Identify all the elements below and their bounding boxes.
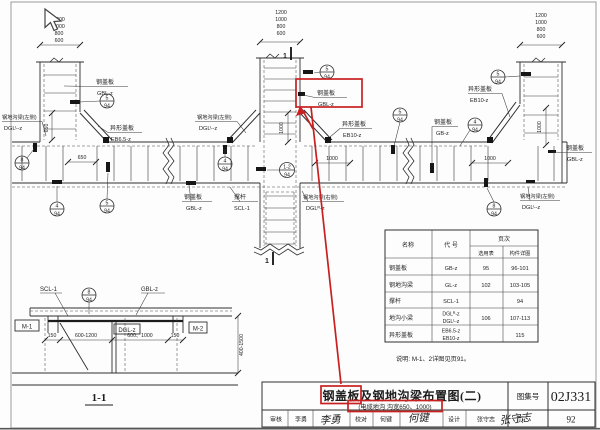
check-label: 校对 [355,416,367,424]
cell-code: GL-z [445,283,457,289]
dim-1000: 1000 [279,122,285,134]
bubble-page-no: 94 [491,212,497,218]
note-text: 说明: M-1、2详图见页91。 [396,355,470,363]
col-header-detail: 构件详图 [510,249,531,257]
review-label: 审核 [270,416,282,424]
bubble-detail-no: 8 [493,204,496,210]
col-header-selection: 选用表 [478,249,494,257]
plan-leaders [2,72,592,202]
reviewer-name: 李勇 [295,416,307,424]
page-no: 92 [567,415,576,425]
col-header-page: 页次 [498,235,510,243]
cell-code: SCL-1 [443,299,459,305]
dim-650: 650 [78,155,87,161]
bubble-page-no: 94 [222,167,228,173]
m2-label: M-2 [193,327,204,333]
dim-value: 800 [55,31,64,37]
cell-name: 地沟小梁 [389,314,413,322]
bubble-detail-no: 4 [56,204,59,210]
cell-code2: EB10-z [442,336,459,342]
part-label: 钢盖板 [566,144,584,152]
cell-code: GB-z [445,266,458,272]
highlight-connector-line [311,107,341,384]
design-label: 设计 [448,416,460,424]
col-header-code: 代 号 [444,241,458,249]
dim-stack-right: 1200 1000 800 600 [535,13,547,40]
section-dim: 150 [48,333,57,339]
cell-sel: 102 [481,283,490,289]
part-label: 钢盖板 [96,78,114,86]
cell-name: 钢盖板 [389,264,407,272]
section-view: 8 94 SCL-1 GBL-z M-1 M-2 DGL-z 150 600-1… [12,287,245,405]
part-code: EB6.5-z [111,137,131,143]
part-label: 撑杆 [234,193,246,201]
dim-value: 1000 [535,20,547,26]
part-code: GBL-z [567,157,583,163]
dim-value: 600 [55,38,64,44]
plan-view: 1200 1000 800 600 1200 1000 800 600 1200… [2,10,592,265]
section-cut-mark: 1 [265,258,269,265]
parts-table: 名称 代 号 页次 选用表 构件详图 钢盖板 GB-z 95 96-101 钢地… [385,230,538,363]
cell-det: 96-101 [511,266,528,272]
bubble-page-no: 94 [54,212,60,218]
part-label: 钢地沟梁(左侧) [197,113,232,121]
bubble-page-no: 94 [104,209,110,215]
part-code: DGLᴸ-z [522,204,540,211]
section-title: 1-1 [92,392,107,404]
cell-name: 撑杆 [389,297,401,305]
part-label: 钢盖板 [434,118,452,126]
cell-code2: DGLᴸ-z [443,319,460,325]
bubble-detail-no: 5 [106,201,109,207]
part-label: 异形盖板 [342,120,366,128]
dim-value: 800 [277,24,286,30]
check-signature: 何键 [408,412,431,425]
part-label: 钢盖板 [184,193,202,201]
part-code: EB10-z [343,133,362,139]
part-label-highlighted: 钢盖板 [317,89,335,97]
title-block: 钢盖板及钢地沟梁布置图(二) (电缆地沟 沟宽650、1000) 图集号 02J… [262,382,595,427]
strut-label: SCL-1 [40,287,58,293]
design-signature: 张守志 [499,412,533,427]
part-code: DGLᴸ-z [4,125,22,132]
bubble-detail-no: 8 [21,158,24,164]
atlas-no-label: 图集号 [517,391,540,401]
dim-value: 1200 [275,10,287,16]
cell-sel: 106 [481,316,490,322]
cell-det: 107-113 [510,316,530,322]
bubble-detail-no: 5 [106,96,109,102]
dim-value: 600 [537,34,546,40]
part-code: GBL-z [186,206,202,212]
section-depth-dim: 400-1500 [239,334,245,356]
atlas-no: 02J331 [551,390,591,405]
bubble-detail-no: 5 [326,67,329,73]
designer-name: 张守志 [477,416,495,424]
m1-label: M-1 [22,325,33,331]
cell-det: 115 [516,333,525,339]
part-code: DGLᴸ-z [199,125,217,132]
part-label: 钢地沟梁(左侧) [520,192,555,200]
bubble-page-no: 94 [472,128,478,134]
review-signature: 李勇 [319,414,341,427]
cover-plate-label: GBL-z [141,287,158,293]
dim-1000: 1000 [484,156,496,162]
dim-stack-center: 1200 1000 800 600 [275,10,287,37]
drawing-sheet: 1200 1000 800 600 1200 1000 800 600 1200… [0,0,600,430]
part-label: 钢地沟梁(左侧) [2,113,37,121]
bubble-detail-no: 4 [224,159,227,165]
cell-name: 钢地沟梁 [389,281,413,289]
table-row: 钢地沟梁 GL-z 102 103-105 [389,281,530,289]
table-row: 地沟小梁 DGLᴿ-z DGLᴸ-z 106 107-113 [389,312,530,326]
cell-det: 103-105 [510,283,531,289]
section-dim: 150 [171,333,180,339]
bubble-page-no: 94 [284,173,290,179]
section-dim: 600-1200 [75,333,97,339]
bubble-detail-no: 1-2 [283,165,291,171]
part-label: 异形盖板 [110,124,134,132]
bubble-page-no: 94 [104,104,110,110]
cell-name: 异形盖板 [389,331,413,339]
sheet-subtitle: (电缆地沟 沟宽650、1000) [358,403,431,411]
bubble-page-no: 94 [397,118,403,124]
bubble-detail-no: 4 [474,120,477,126]
checker-name: 何键 [380,416,392,424]
dim-value: 1200 [535,13,547,19]
dim-1000: 1000 [326,156,338,162]
bubble-page-no: 94 [495,80,501,86]
table-row: 异形盖板 EB6.5-z EB10-z 115 [389,329,524,343]
col-header-name: 名称 [402,241,414,249]
cell-det: 94 [517,299,523,305]
cell-code: DGLᴿ-z [442,312,460,318]
bubble-page-no: 94 [86,298,92,304]
dim-1000: 1000 [537,121,543,133]
bubble-detail-no: 5 [399,110,402,116]
table-row: 钢盖板 GB-z 95 96-101 [389,264,529,272]
cell-sel: 95 [483,266,489,272]
dim-value: 800 [537,27,546,33]
dim-value: 1000 [275,17,287,23]
bubble-page-no: 94 [19,166,25,172]
section-cut-mark: 1 [283,53,287,60]
part-code: EB10-z [470,98,489,104]
part-code: GB-z [436,131,449,137]
section-dim: 600、1000 [127,333,152,339]
cell-code: EB6.5-z [442,329,461,335]
part-label: 异形盖板 [468,85,492,93]
bubble-detail-no: 5 [497,72,500,78]
part-code: SCL-1 [234,206,250,212]
dim-value: 600 [277,31,286,37]
bubble-detail-no: 8 [88,290,91,296]
